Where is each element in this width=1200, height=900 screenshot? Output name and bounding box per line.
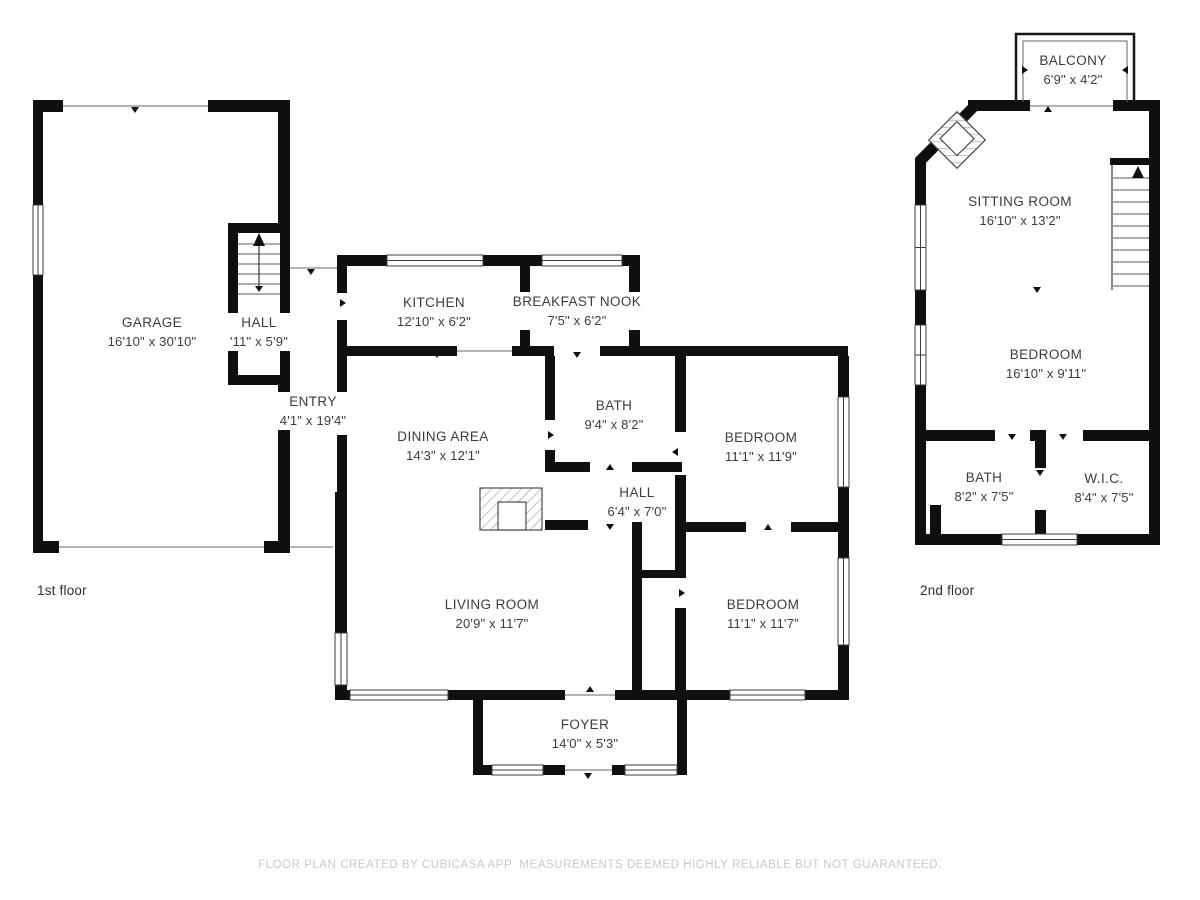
room-name: BATH (954, 468, 1013, 487)
room-label-foyer: FOYER 14'0" x 5'3" (549, 715, 621, 753)
room-label-sitting-room: SITTING ROOM 16'10" x 13'2" (965, 192, 1075, 230)
room-name: LIVING ROOM (445, 595, 539, 614)
floor-plan-page: GARAGE 16'10" x 30'10" HALL '11" x 5'9" … (0, 0, 1200, 900)
room-name: GARAGE (108, 313, 197, 332)
room-label-breakfast-nook: BREAKFAST NOOK 7'5" x 6'2" (510, 292, 644, 330)
corner-fireplace-icon (929, 112, 986, 169)
room-dims: 7'5" x 6'2" (513, 311, 641, 330)
room-dims: 6'4" x 7'0" (607, 502, 666, 521)
room-dims: 14'0" x 5'3" (552, 734, 618, 753)
room-name: FOYER (552, 715, 618, 734)
room-label-dining-area: DINING AREA 14'3" x 12'1" (394, 427, 491, 465)
room-name: BEDROOM (725, 428, 798, 447)
room-dims: 4'1" x 19'4" (280, 411, 346, 430)
room-dims: 16'10" x 30'10" (108, 332, 197, 351)
room-dims: 16'10" x 13'2" (968, 211, 1072, 230)
stairs-first-floor (238, 233, 280, 294)
room-dims: 8'2" x 7'5" (954, 487, 1013, 506)
main-house-windows (335, 255, 849, 775)
footer-disclaimer: FLOOR PLAN CREATED BY CUBICASA APP MEASU… (0, 859, 1200, 871)
room-label-hall: HALL 6'4" x 7'0" (604, 483, 669, 521)
room-name: KITCHEN (397, 293, 471, 312)
room-name: ENTRY (280, 392, 346, 411)
room-name: DINING AREA (397, 427, 488, 446)
room-name: BREAKFAST NOOK (513, 292, 641, 311)
room-dims: 20'9" x 11'7" (445, 614, 539, 633)
room-label-bedroom-3: BEDROOM 16'10" x 9'11" (1003, 345, 1089, 383)
room-dims: 6'9" x 4'2" (1039, 70, 1106, 89)
room-dims: 11'1" x 11'9" (725, 447, 798, 466)
room-dims: 11'1" x 11'7" (727, 614, 800, 633)
room-name: BATH (584, 396, 643, 415)
second-floor-caption: 2nd floor (920, 583, 974, 598)
room-name: HALL (607, 483, 666, 502)
first-floor-caption: 1st floor (37, 583, 87, 598)
garage-window (33, 205, 43, 275)
room-name: HALL (230, 313, 288, 332)
stairs-second-floor (1110, 158, 1149, 290)
room-name: BALCONY (1039, 51, 1106, 70)
room-dims: '11" x 5'9" (230, 332, 288, 351)
room-label-bath: BATH 9'4" x 8'2" (581, 396, 646, 434)
room-label-bath-2: BATH 8'2" x 7'5" (951, 468, 1016, 506)
room-label-balcony: BALCONY 6'9" x 4'2" (1036, 51, 1109, 89)
room-label-garage: GARAGE 16'10" x 30'10" (105, 313, 200, 351)
room-dims: 12'10" x 6'2" (397, 312, 471, 331)
room-dims: 14'3" x 12'1" (397, 446, 488, 465)
room-label-bedroom-2: BEDROOM 11'1" x 11'7" (724, 595, 803, 633)
room-name: SITTING ROOM (968, 192, 1072, 211)
room-label-wic: W.I.C. 8'4" x 7'5" (1071, 469, 1136, 507)
room-dims: 16'10" x 9'11" (1006, 364, 1086, 383)
room-name: BEDROOM (1006, 345, 1086, 364)
room-dims: 8'4" x 7'5" (1074, 488, 1133, 507)
room-label-living-room: LIVING ROOM 20'9" x 11'7" (442, 595, 542, 633)
room-dims: 9'4" x 8'2" (584, 415, 643, 434)
fireplace-icon (480, 488, 542, 530)
room-label-entry: ENTRY 4'1" x 19'4" (277, 392, 349, 430)
room-label-kitchen: KITCHEN 12'10" x 6'2" (394, 293, 474, 331)
room-name: W.I.C. (1074, 469, 1133, 488)
room-label-bedroom-1: BEDROOM 11'1" x 11'9" (722, 428, 801, 466)
floor-plan-canvas (0, 0, 1200, 900)
room-label-stair-hall: HALL '11" x 5'9" (227, 313, 291, 351)
room-name: BEDROOM (727, 595, 800, 614)
door-markers-second-floor (1008, 66, 1128, 476)
